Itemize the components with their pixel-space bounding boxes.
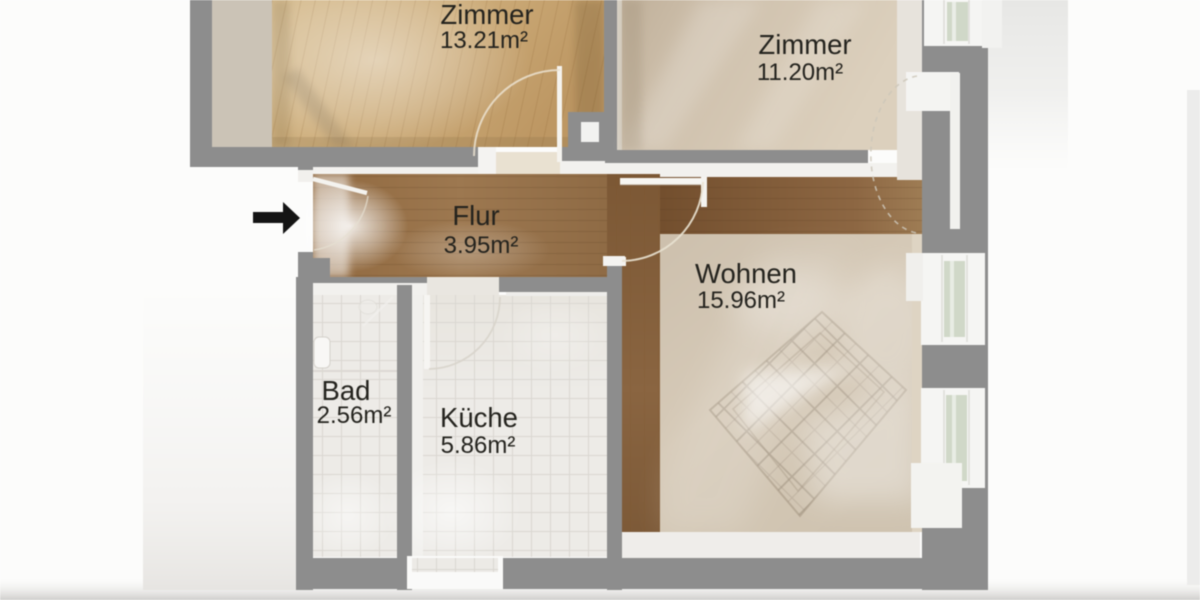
svg-text:5.86m²: 5.86m² (441, 432, 516, 459)
svg-text:15.96m²: 15.96m² (697, 287, 785, 314)
svg-text:Wohnen: Wohnen (695, 258, 797, 289)
svg-text:13.21m²: 13.21m² (440, 27, 528, 54)
svg-text:3.95m²: 3.95m² (444, 232, 519, 259)
svg-text:11.20m²: 11.20m² (757, 59, 843, 86)
svg-text:Zimmer: Zimmer (440, 0, 533, 30)
svg-text:Küche: Küche (440, 402, 518, 433)
svg-text:2.56m²: 2.56m² (317, 402, 392, 429)
svg-text:Flur: Flur (452, 200, 499, 231)
svg-text:Zimmer: Zimmer (758, 29, 851, 60)
